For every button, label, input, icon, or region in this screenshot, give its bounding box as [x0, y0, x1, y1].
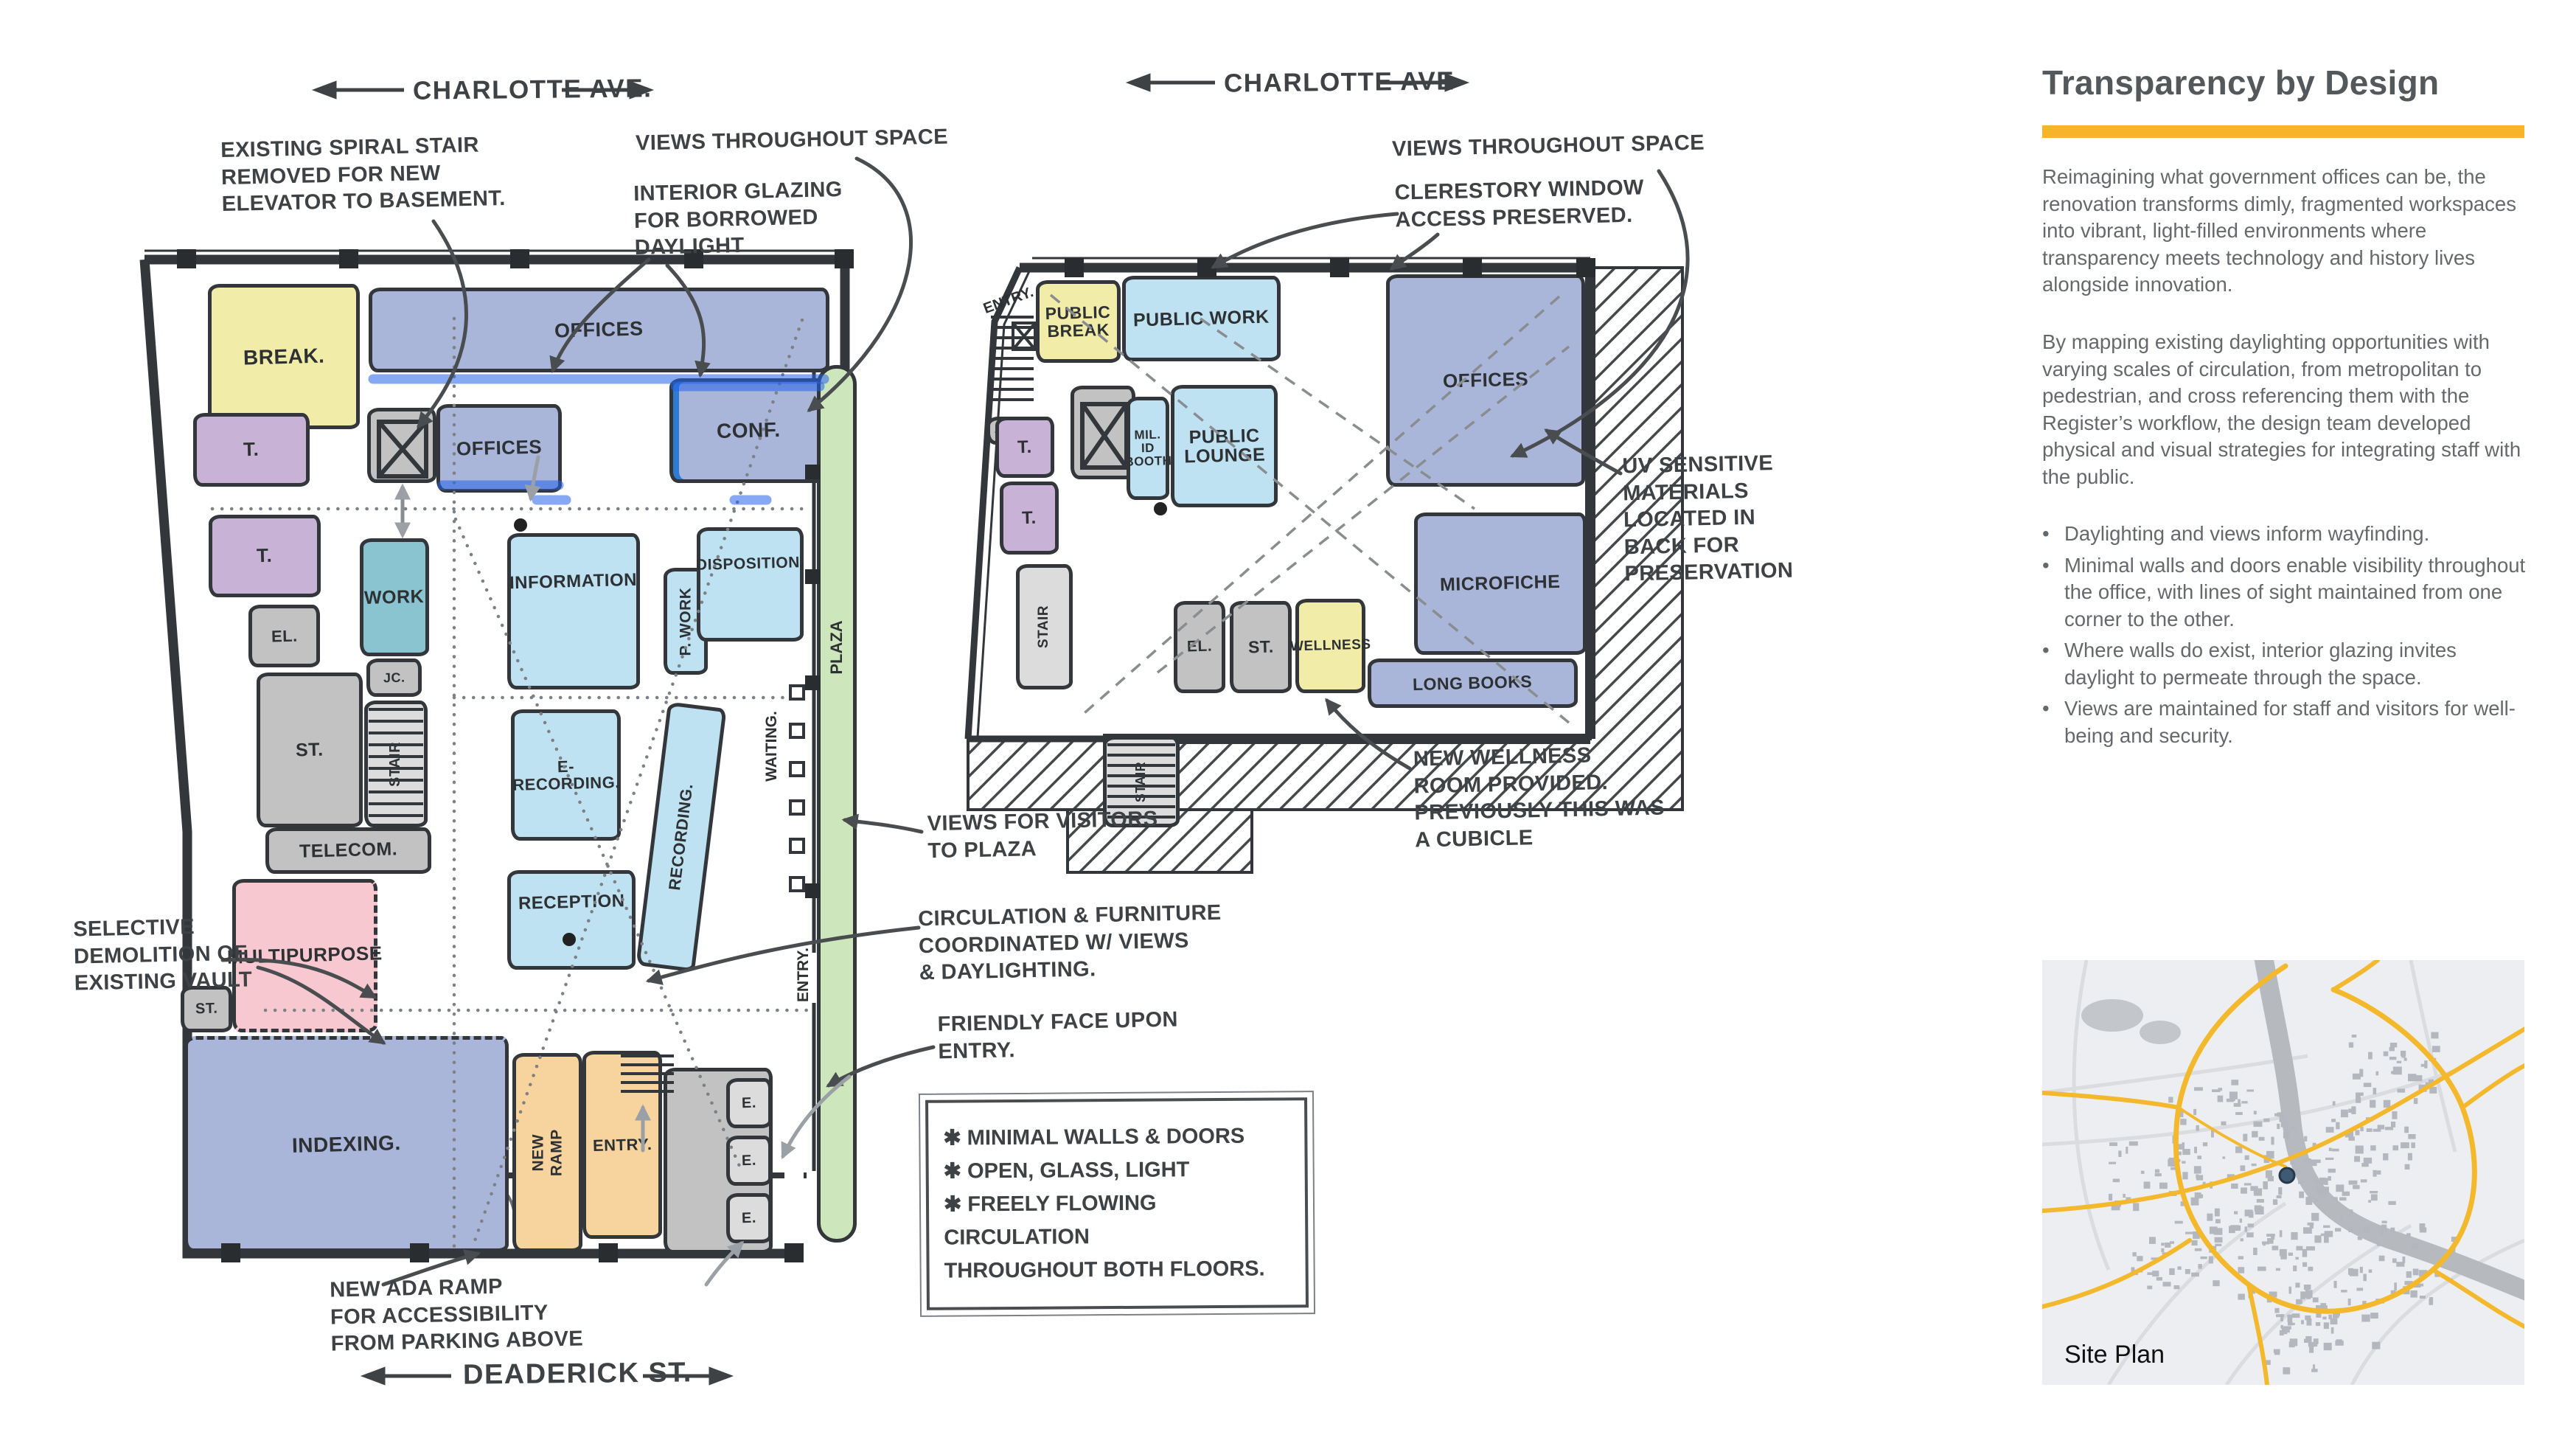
accent-bar	[2042, 125, 2524, 138]
bullet-item: •Minimal walls and doors enable visibili…	[2042, 552, 2526, 633]
street-label-charlotte-left: CHARLOTTE AVE.	[413, 74, 652, 105]
right-entry-label: ENTRY.	[981, 284, 1036, 318]
room-toilet-right-2: T.	[1000, 482, 1059, 555]
annotation-new-wellness: NEW WELLNESS ROOM PROVIDED. PREVIOUSLY T…	[1413, 740, 1666, 853]
room-public-work: PUBLIC WORK	[1122, 276, 1281, 361]
room-new-ramp: NEW RAMP	[512, 1053, 582, 1252]
annotation-spiral-stair: EXISTING SPIRAL STAIR REMOVED FOR NEW EL…	[220, 131, 506, 218]
presentation-board: CHARLOTTE AVE. DEADERICK ST. BREAK. OFFI…	[0, 0, 2576, 1449]
annotation-uv-sensitive: UV SENSITIVE MATERIALS LOCATED IN BACK F…	[1622, 450, 1794, 588]
waiting-label: WAITING.	[763, 711, 781, 782]
key-notes-box: ✱ MINIMAL WALLS & DOORS ✱ OPEN, GLASS, L…	[925, 1097, 1309, 1310]
room-recording: RECORDING.	[636, 701, 726, 972]
annotation-ada-ramp: NEW ADA RAMP FOR ACCESSIBILITY FROM PARK…	[330, 1271, 584, 1358]
panel-paragraph-1: Reimagining what government offices can …	[2042, 164, 2521, 299]
bullet-item: •Daylighting and views inform wayfinding…	[2042, 521, 2526, 548]
room-el-right: EL.	[1174, 601, 1225, 693]
entry-side-label: ENTRY.	[795, 948, 812, 1002]
site-plan-map	[2042, 960, 2524, 1385]
room-st-right: ST.	[1230, 601, 1292, 693]
room-stair-west: STAIR	[1016, 564, 1073, 689]
room-elevator-e1: E.	[726, 1078, 772, 1128]
room-elevator: EL.	[248, 605, 320, 667]
room-offices-top: OFFICES	[369, 288, 829, 372]
room-wellness: WELLNESS	[1295, 599, 1365, 693]
room-offices-right: OFFICES	[1386, 274, 1585, 487]
room-entry: ENTRY.	[582, 1051, 662, 1239]
room-toilet-2: T.	[209, 515, 321, 597]
room-indexing: INDEXING.	[184, 1036, 509, 1252]
annotation-selective-demolition: SELECTIVE DEMOLITION OF EXISTING VAULT	[73, 912, 253, 997]
annotation-circulation: CIRCULATION & FURNITURE COORDINATED W/ V…	[918, 900, 1223, 987]
room-reception: RECEPTION	[507, 870, 636, 970]
room-toilet-right-1: T.	[995, 417, 1054, 478]
plaza-strip	[817, 365, 857, 1243]
room-stair: STAIR	[364, 701, 428, 827]
room-elevator-e3: E.	[726, 1193, 772, 1243]
room-multipurpose: MULTIPURPOSE	[232, 879, 377, 1032]
room-conference: CONF.	[669, 378, 827, 483]
page-title: Transparency by Design	[2042, 63, 2439, 102]
room-e-recording: E-RECORDING.	[511, 709, 621, 841]
street-label-deaderick: DEADERICK ST.	[463, 1357, 692, 1391]
street-label-charlotte-right: CHARLOTTE AVE	[1224, 66, 1455, 98]
plaza-label: PLAZA	[827, 620, 846, 674]
annotation-friendly-face: FRIENDLY FACE UPON ENTRY.	[937, 1007, 1179, 1066]
room-mil-id-booth: MIL. ID BOOTH	[1127, 397, 1169, 500]
site-plan-label: Site Plan	[2064, 1341, 2165, 1369]
room-microfiche: MICROFICHE	[1414, 512, 1587, 655]
room-elevator-e2: E.	[726, 1136, 772, 1186]
annotation-interior-glazing: INTERIOR GLAZING FOR BORROWED DAYLIGHT	[633, 176, 844, 262]
elevator-shaft	[367, 408, 436, 483]
panel-paragraph-2: By mapping existing daylighting opportun…	[2042, 329, 2521, 490]
room-break: BREAK.	[208, 284, 360, 429]
room-work: WORK	[360, 538, 429, 656]
annotation-views-right: VIEWS THROUGHOUT SPACE	[1392, 130, 1705, 163]
room-information: INFORMATION	[507, 533, 640, 689]
room-public-lounge: PUBLIC LOUNGE	[1171, 385, 1278, 507]
room-storage-big: ST.	[257, 673, 363, 827]
bullet-item: •Where walls do exist, interior glazing …	[2042, 637, 2526, 691]
room-telecom: TELECOM.	[265, 827, 431, 874]
panel-bullet-list: •Daylighting and views inform wayfinding…	[2042, 521, 2526, 754]
annotation-clerestory: CLERESTORY WINDOW ACCESS PRESERVED.	[1394, 174, 1645, 233]
room-long-books: LONG BOOKS	[1368, 659, 1578, 708]
annotation-views-plaza: VIEWS FOR VISITORS TO PLAZA	[927, 806, 1158, 865]
bullet-item: •Views are maintained for staff and visi…	[2042, 695, 2526, 749]
room-toilet-1: T.	[193, 413, 310, 487]
room-disposition: DISPOSITION.	[697, 527, 804, 642]
annotation-views-left: VIEWS THROUGHOUT SPACE	[636, 124, 949, 157]
room-janitor-closet: JC.	[366, 659, 422, 697]
room-offices-mid: OFFICES	[436, 404, 562, 493]
room-public-break: PUBLIC BREAK	[1036, 280, 1121, 363]
